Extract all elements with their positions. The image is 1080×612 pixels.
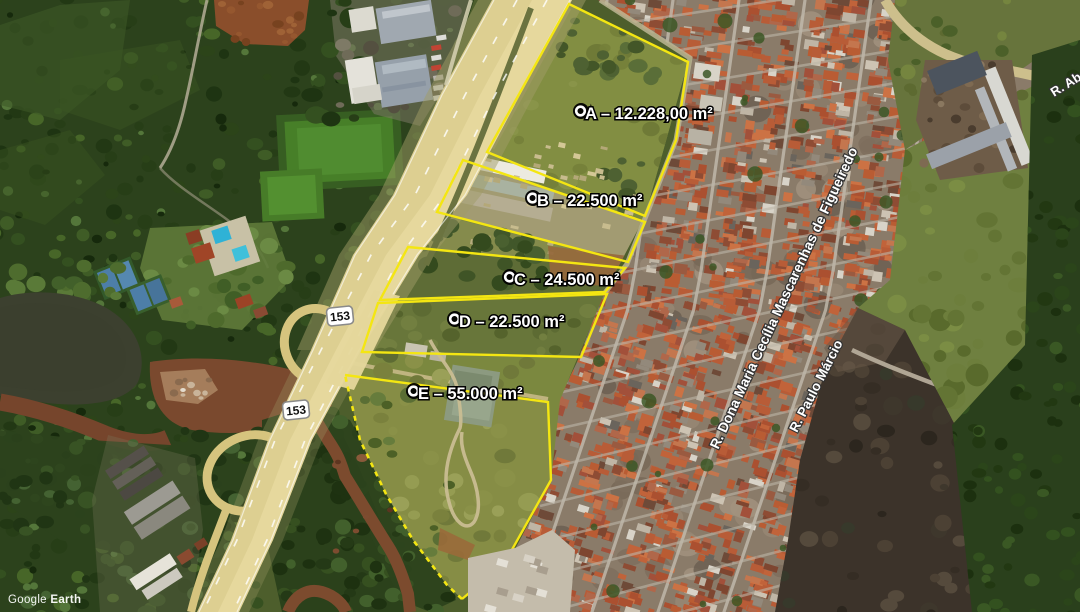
svg-text:A – 12.228,00 m²: A – 12.228,00 m²: [585, 105, 713, 123]
svg-text:B – 22.500 m²: B – 22.500 m²: [537, 192, 643, 210]
svg-text:C – 24.500 m²: C – 24.500 m²: [514, 271, 620, 289]
svg-text:D – 22.500 m²: D – 22.500 m²: [459, 313, 565, 331]
svg-text:153: 153: [285, 402, 307, 418]
svg-text:Google Earth: Google Earth: [8, 594, 81, 606]
svg-text:153: 153: [329, 308, 351, 324]
svg-text:E – 55.000 m²: E – 55.000 m²: [418, 385, 523, 403]
